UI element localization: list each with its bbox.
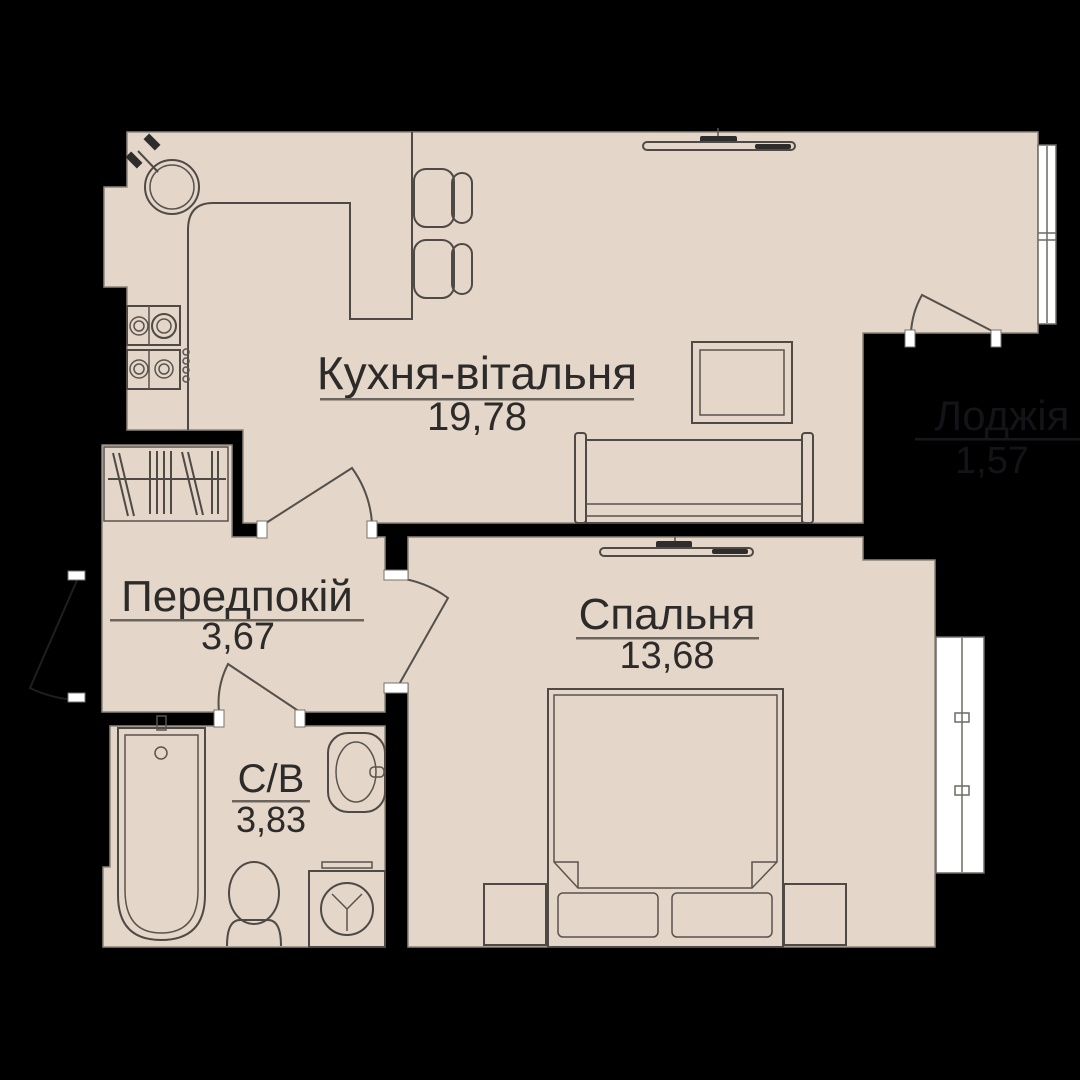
room-area-value: 3,83 (236, 799, 306, 840)
floor-plan-canvas: Кухня-вітальня 19,78 Спальня 13,68 Перед… (0, 0, 1080, 1080)
room-area-value: 13,68 (619, 635, 714, 677)
label-bathroom: С/В 3,83 (232, 757, 310, 840)
room-area-value: 19,78 (427, 395, 527, 439)
opening-kitchen-hallway (266, 521, 368, 539)
label-loggia-muted: Лоджія 1,57 (915, 392, 1080, 482)
opening-hallway-bathroom (224, 710, 295, 728)
room-name: Лоджія (935, 392, 1070, 439)
entrance-door (30, 571, 85, 702)
kitchen-window (1038, 145, 1056, 324)
floor-plan: Кухня-вітальня 19,78 Спальня 13,68 Перед… (0, 0, 1080, 1080)
room-name: Кухня-вітальня (317, 347, 637, 399)
room-name: Передпокій (121, 572, 353, 621)
room-kitchen-living-floor (104, 132, 1038, 523)
bedroom-window (936, 637, 984, 873)
room-name: Спальня (579, 590, 756, 639)
room-area-value: 1,57 (955, 440, 1029, 482)
opening-hallway-bedroom (383, 580, 410, 683)
room-area-value: 3,67 (201, 616, 275, 658)
room-name: С/В (238, 757, 305, 801)
